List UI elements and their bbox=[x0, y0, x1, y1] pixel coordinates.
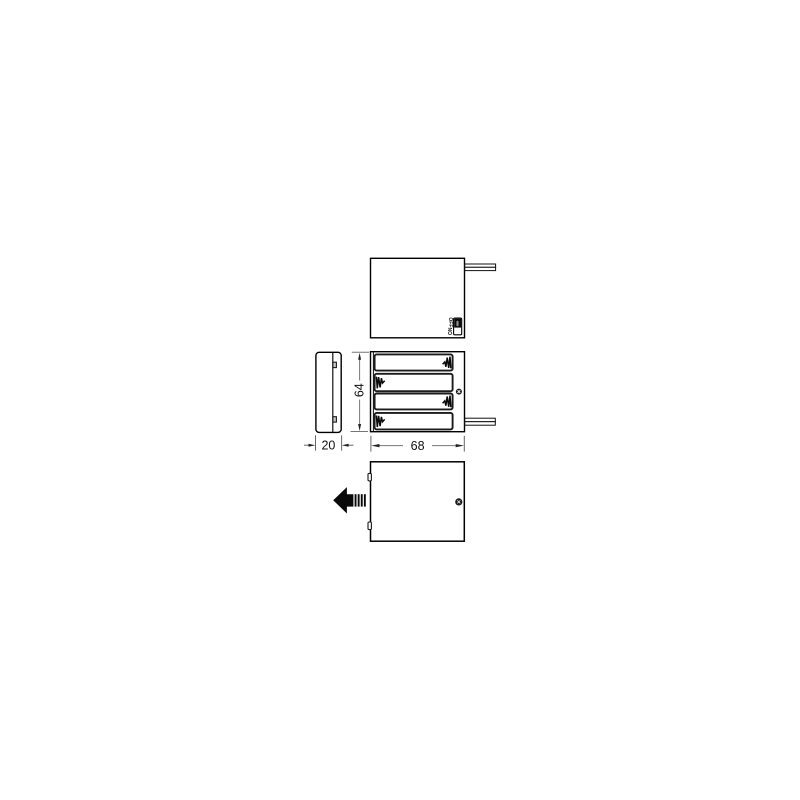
svg-text:20: 20 bbox=[321, 439, 335, 453]
svg-text:64: 64 bbox=[353, 383, 367, 397]
svg-text:OFF: OFF bbox=[447, 317, 453, 327]
svg-text:68: 68 bbox=[411, 439, 425, 453]
svg-text:ON: ON bbox=[448, 327, 454, 335]
